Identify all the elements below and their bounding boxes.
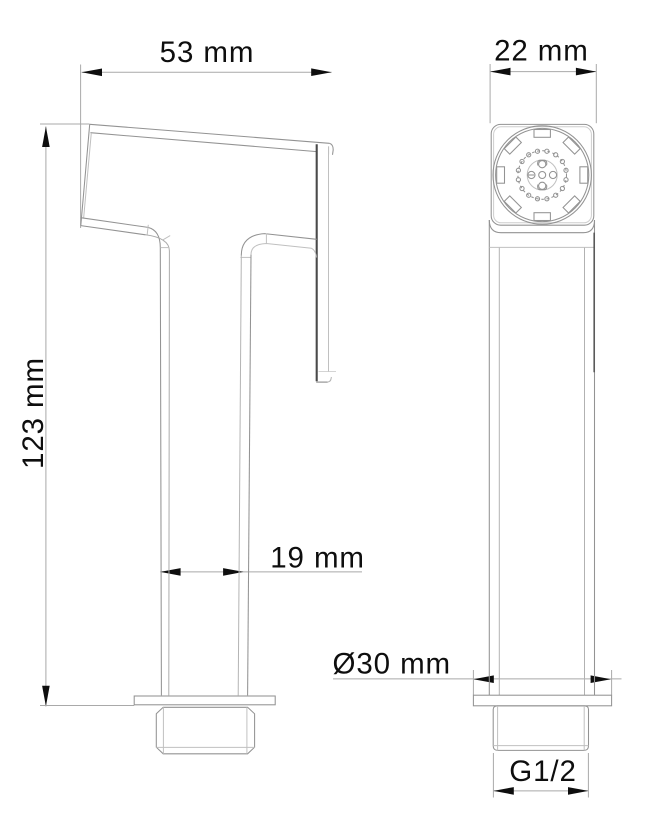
svg-text:123 mm: 123 mm	[17, 357, 50, 469]
svg-text:53 mm: 53 mm	[160, 36, 255, 69]
svg-text:19 mm: 19 mm	[270, 542, 365, 575]
svg-text:G1/2: G1/2	[509, 755, 577, 788]
svg-text:Ø30 mm: Ø30 mm	[333, 648, 452, 681]
svg-text:22 mm: 22 mm	[494, 35, 589, 68]
